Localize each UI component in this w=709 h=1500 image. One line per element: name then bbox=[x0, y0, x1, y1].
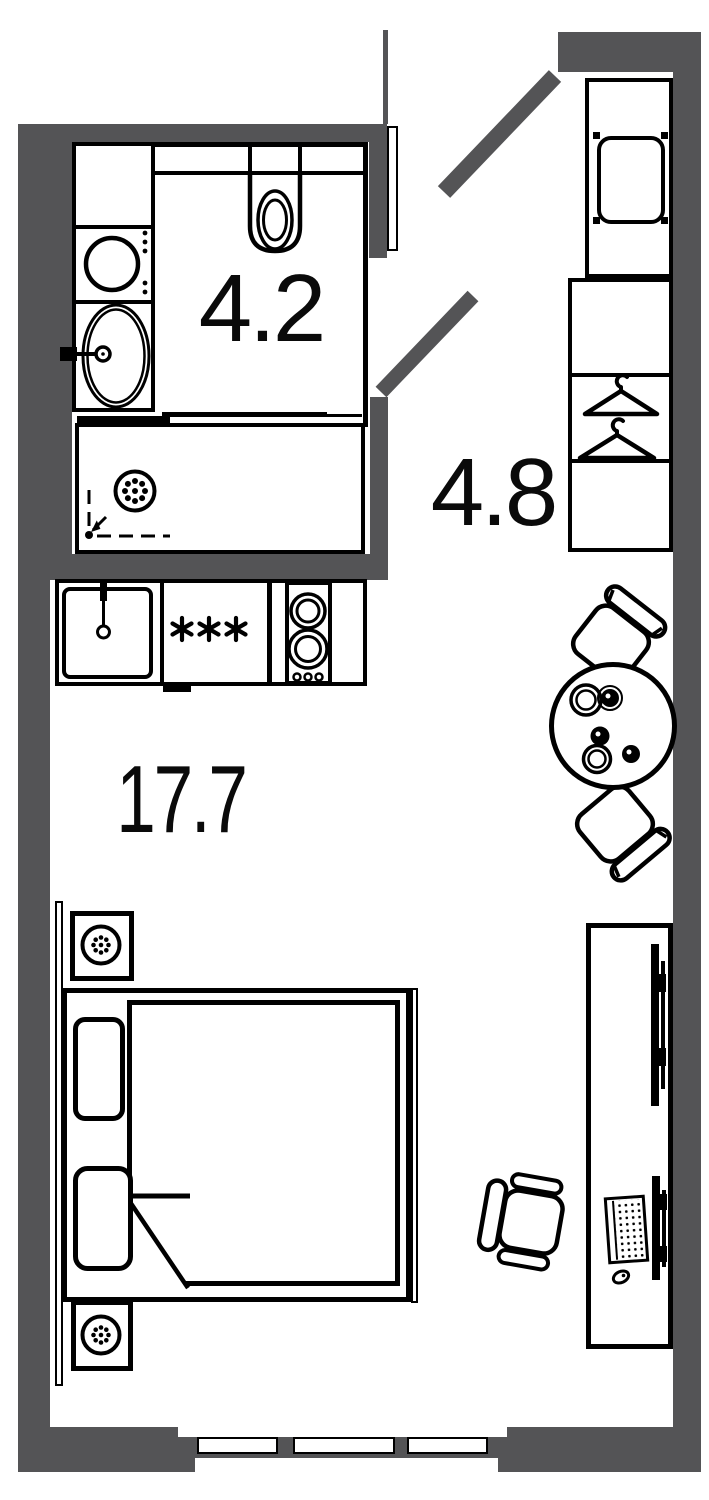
wall-bathroom-kitchen bbox=[50, 554, 388, 580]
cup-icon bbox=[598, 686, 622, 710]
shower-room bbox=[75, 423, 365, 554]
keyboard-keys bbox=[612, 1199, 645, 1260]
plate-icon bbox=[584, 746, 611, 773]
wall-entry-stub-upper bbox=[369, 124, 387, 258]
wall-right bbox=[673, 32, 701, 1472]
bathroom-inner-right-line bbox=[363, 142, 368, 427]
wardrobe bbox=[568, 278, 673, 552]
room-label-bathroom: 4.2 bbox=[199, 261, 323, 357]
dining-table-icon bbox=[552, 665, 675, 788]
dining-chair-icon bbox=[566, 583, 669, 688]
counter-divider-1 bbox=[160, 581, 164, 684]
sliding-partition-bar-b bbox=[162, 412, 327, 417]
kitchen-sink bbox=[62, 587, 153, 679]
counter-divider-2 bbox=[267, 581, 272, 684]
room-label-hallway: 4.8 bbox=[431, 445, 555, 541]
fixture-divider-2 bbox=[72, 300, 155, 304]
plate-icon bbox=[571, 685, 601, 715]
door-leaf-against-wall bbox=[387, 126, 398, 251]
bed-side-line-right bbox=[411, 988, 418, 1303]
bathroom-fixture-column bbox=[72, 142, 155, 412]
window-outer-sill bbox=[195, 1458, 498, 1472]
wall-entry-thin-line bbox=[383, 30, 388, 124]
cup-icon bbox=[622, 745, 640, 763]
window-sash-left bbox=[197, 1437, 278, 1454]
pillow-top bbox=[73, 1017, 125, 1121]
wall-bathroom-left bbox=[50, 124, 72, 576]
window-sash-right bbox=[407, 1437, 488, 1454]
sliding-partition-bar-a bbox=[77, 416, 170, 423]
toilet-back-line bbox=[155, 171, 368, 175]
wall-left bbox=[18, 124, 50, 1472]
interior-door-icon bbox=[381, 296, 473, 392]
nightstand-bottom bbox=[71, 1300, 133, 1371]
wardrobe-divider-1 bbox=[568, 373, 673, 377]
fixture-divider-1 bbox=[72, 225, 155, 229]
wall-bathroom-top bbox=[18, 124, 387, 142]
office-chair-icon bbox=[476, 1169, 567, 1271]
sliding-partition-bar-c bbox=[327, 414, 362, 417]
window-inner-gap bbox=[178, 1427, 507, 1437]
room-label-living-kitchen: 17.7 bbox=[116, 752, 245, 848]
floor-plan: 4.2 4.8 17.7 bbox=[0, 0, 709, 1500]
dining-chair-icon bbox=[570, 779, 674, 884]
nightstand-top bbox=[70, 911, 134, 981]
window-sash-middle bbox=[293, 1437, 395, 1454]
counter-handle-tick bbox=[163, 686, 191, 692]
toilet-icon bbox=[248, 146, 302, 251]
entrance-door-icon bbox=[444, 76, 555, 192]
stove-hob bbox=[285, 581, 332, 685]
desk bbox=[586, 923, 673, 1349]
mattress bbox=[127, 1000, 400, 1286]
wall-entry-stub-lower bbox=[370, 397, 388, 578]
cup-icon bbox=[591, 727, 610, 746]
keyboard-icon bbox=[604, 1195, 650, 1265]
stool bbox=[597, 136, 665, 224]
wardrobe-divider-2 bbox=[568, 459, 673, 463]
